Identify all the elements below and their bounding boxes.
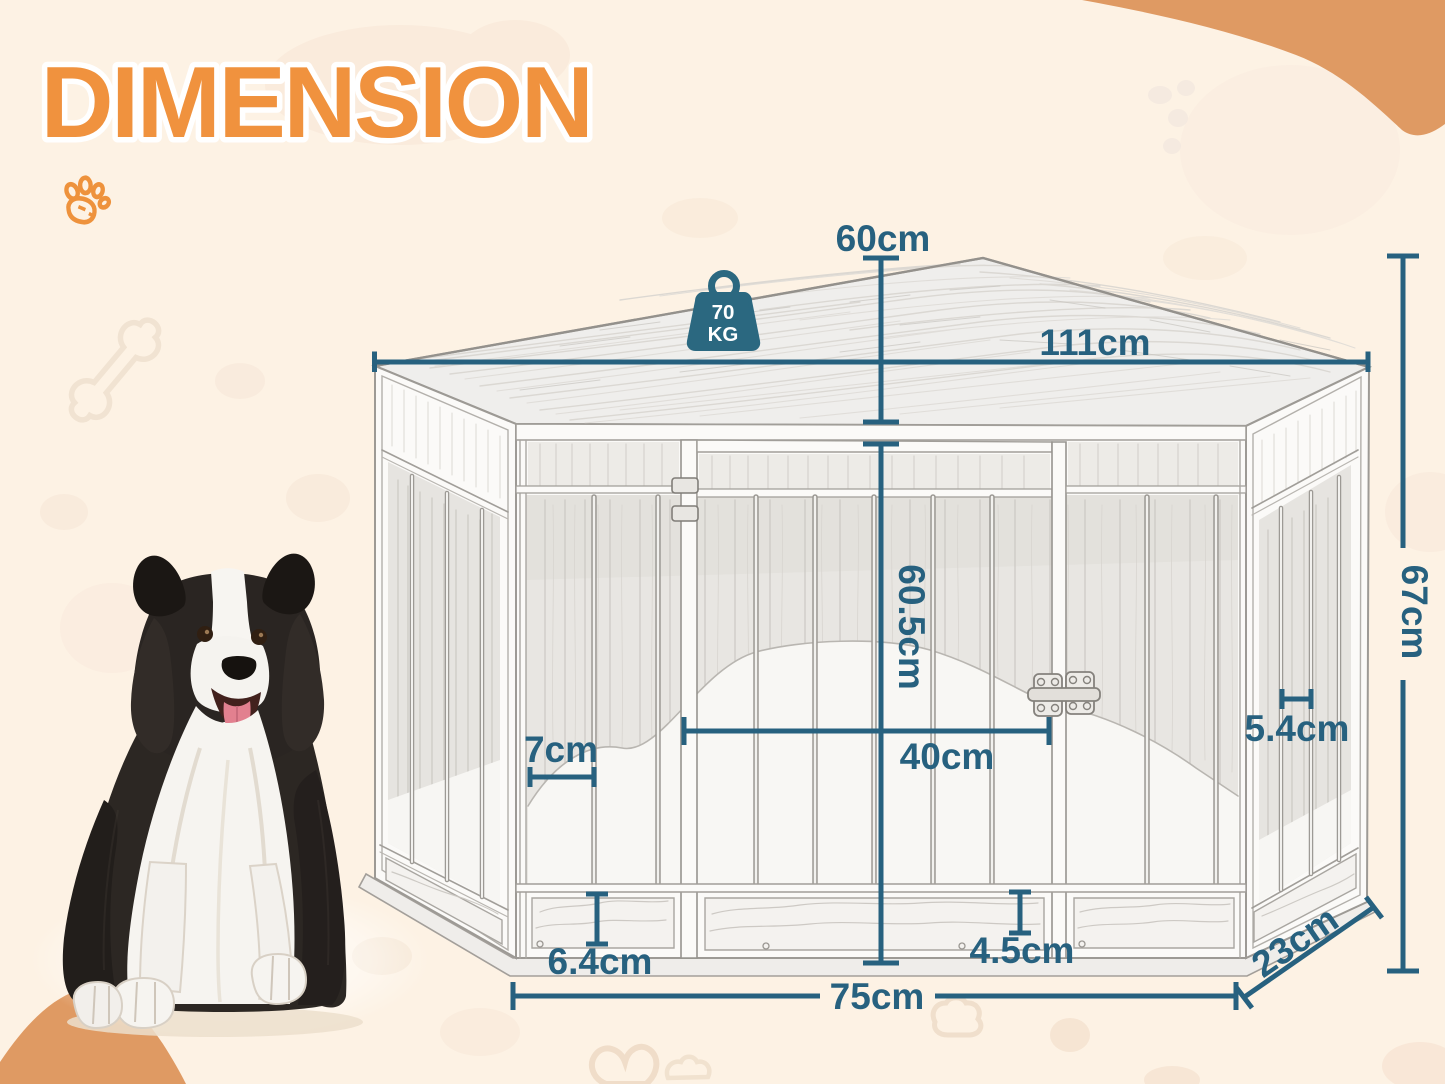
svg-text:40cm: 40cm [900, 736, 995, 777]
svg-text:5.4cm: 5.4cm [1245, 708, 1350, 749]
svg-text:DIMENSION: DIMENSION [41, 47, 592, 159]
svg-text:4.5cm: 4.5cm [970, 930, 1075, 971]
svg-text:KG: KG [708, 323, 739, 346]
svg-text:67cm: 67cm [1394, 565, 1435, 660]
svg-text:75cm: 75cm [830, 976, 925, 1017]
svg-text:60cm: 60cm [836, 218, 931, 259]
svg-text:111cm: 111cm [1039, 322, 1150, 363]
svg-text:6.4cm: 6.4cm [548, 941, 653, 982]
svg-text:70: 70 [712, 301, 735, 324]
svg-text:7cm: 7cm [524, 729, 598, 770]
svg-text:60.5cm: 60.5cm [891, 564, 932, 690]
